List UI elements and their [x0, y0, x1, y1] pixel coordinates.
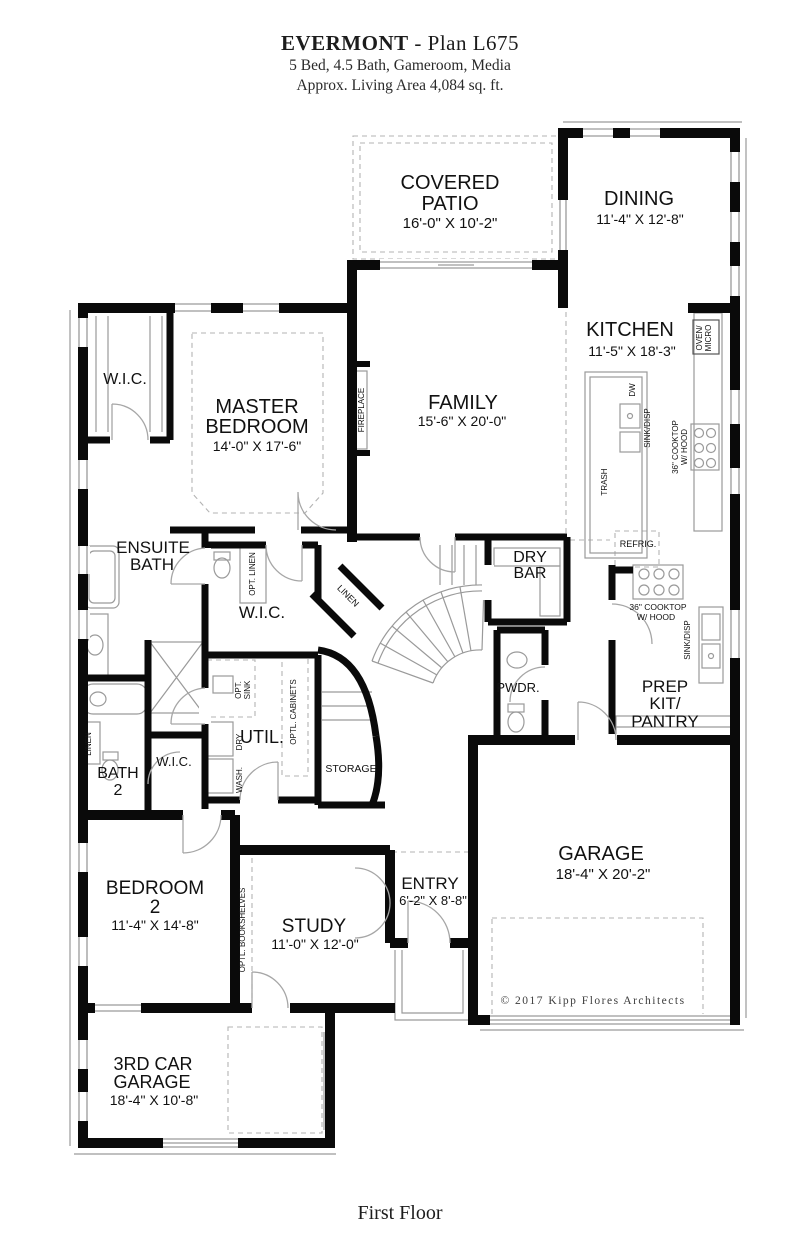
copyright-text: © 2017 Kipp Flores Architects [500, 995, 685, 1007]
label-wic3: W.I.C. [156, 754, 191, 769]
label-covered-patio-1: COVERED [401, 172, 500, 194]
ensuite-tub-inner [89, 551, 115, 603]
label-dry: DRY [235, 733, 244, 750]
wall-wic3 [148, 735, 205, 815]
label-study: STUDY [282, 916, 347, 937]
label-family: FAMILY [428, 392, 498, 414]
label-optl-cabinets: OPTL. CABINETS [289, 679, 298, 744]
refrigerator-outline [615, 531, 659, 567]
label-garage: GARAGE [558, 843, 644, 865]
stair-treads [372, 585, 484, 683]
label-pwdr: PWDR. [496, 680, 539, 695]
porch-outline [395, 950, 470, 1020]
label-sink-disp-island: SINK/DISP [643, 408, 652, 448]
label-util: UTIL. [240, 727, 284, 747]
label-linen-bath2: LINEN [84, 732, 93, 756]
label-family-dims: 15'-6" X 20'-0" [418, 413, 506, 429]
label-covered-patio-dims: 16'-0" X 10'-2" [403, 215, 498, 232]
label-master-1: MASTER [215, 396, 298, 418]
label-wic2: W.I.C. [239, 603, 285, 622]
garage3-door-swing-area [228, 1027, 322, 1133]
label-prep-3: PANTRY [631, 712, 698, 731]
pwdr-toilet-tank [508, 704, 524, 712]
label-drybar-2: BAR [514, 565, 547, 582]
label-ensuite-2: BATH [130, 555, 174, 574]
label-oven-2: MICRO [704, 325, 713, 352]
label-wic1: W.I.C. [103, 371, 147, 388]
label-kitchen-dims: 11'-5" X 18'-3" [588, 343, 675, 359]
water-closet-toilet-icon [214, 558, 230, 578]
label-garage3-1: 3RD CAR [113, 1054, 192, 1074]
label-entry-dims: 6'-2" X 8'-8" [399, 893, 467, 908]
bath2-tub [83, 684, 147, 714]
label-prep-2: KIT/ [649, 694, 680, 713]
label-entry: ENTRY [401, 874, 458, 893]
stair-top-treads [440, 545, 476, 585]
label-dining-dims: 11'-4" X 12'-8" [596, 211, 683, 227]
opt-sink-basin [213, 676, 233, 693]
label-wash: WASH. [235, 767, 244, 793]
label-opt-sink-2: SINK [243, 680, 252, 699]
label-bedroom2-dims: 11'-4" X 14'-8" [111, 917, 198, 933]
washer-icon [205, 759, 233, 793]
label-cooktop-p2: W/ HOOD [637, 612, 675, 622]
label-garage-dims: 18'-4" X 20'-2" [556, 866, 651, 883]
label-cooktop-k1: 36" COOKTOP [671, 420, 680, 474]
label-dw: DW [628, 383, 637, 397]
label-bedroom2-2: 2 [150, 897, 161, 918]
label-master-dims: 14'-0" X 17'-6" [213, 438, 301, 454]
kitchen-island [585, 372, 647, 558]
pwdr-sink-icon [507, 652, 527, 668]
floor-plan-drawing: COVERED PATIO 16'-0" X 10'-2" DINING 11'… [0, 0, 800, 1242]
label-covered-patio-2: PATIO [421, 193, 478, 215]
wall-stair-curve [318, 650, 376, 736]
french-doors-study [355, 868, 390, 938]
pantry-sink-basin2 [702, 644, 720, 668]
island-sink-basin1 [620, 404, 640, 428]
label-cooktop-k2: W/ HOOD [680, 429, 689, 465]
water-closet-tank [214, 552, 230, 560]
label-oven-1: OVEN/ [695, 325, 704, 351]
bath2-toilet-tank [103, 752, 118, 760]
label-cooktop-p1: 36" COOKTOP [629, 602, 687, 612]
label-bath2-2: 2 [114, 782, 123, 799]
label-kitchen: KITCHEN [586, 319, 674, 341]
label-opt-sink-1: OPT. [234, 681, 243, 699]
label-opt-linen: OPT. LINEN [248, 552, 257, 596]
label-bath2-1: BATH [97, 765, 138, 782]
label-dining: DINING [604, 188, 674, 210]
floor-title: First Floor [0, 1202, 800, 1225]
pwdr-toilet-icon [508, 712, 524, 732]
island-sink-basin2 [620, 432, 640, 452]
pantry-sink-basin1 [702, 614, 720, 640]
ensuite-shower-glass [150, 642, 203, 713]
door-stairhall [420, 537, 455, 572]
bath2-tub-drain [90, 692, 106, 706]
label-garage3-2: GARAGE [113, 1072, 190, 1092]
dryer-icon [205, 722, 233, 756]
island-sink-drain [628, 414, 633, 419]
label-master-2: BEDROOM [205, 416, 308, 438]
label-refrig: REFRIG. [620, 539, 657, 549]
label-fireplace: FIREPLACE [357, 388, 366, 432]
label-bedroom2-1: BEDROOM [106, 878, 204, 899]
label-storage: STORAGE [325, 763, 376, 775]
label-garage3-dims: 18'-4" X 10'-8" [110, 1092, 198, 1108]
label-drybar-1: DRY [513, 549, 547, 566]
label-study-dims: 11'-0" X 12'-0" [271, 936, 358, 952]
floor-plan-page: EVERMONT - Plan L675 5 Bed, 4.5 Bath, Ga… [0, 0, 800, 1242]
door-master [298, 492, 336, 530]
label-trash: TRASH [600, 468, 609, 495]
label-sink-disp-pantry: SINK/DISP [683, 620, 692, 660]
label-optl-bookshelves: OPTL. BOOKSHELVES [238, 888, 247, 973]
ensuite-tub [85, 546, 119, 608]
dashed-features [192, 136, 703, 1133]
kitchen-island-inner [590, 377, 642, 553]
stair-outer-arc [372, 585, 484, 661]
porch-inner [402, 950, 463, 1013]
